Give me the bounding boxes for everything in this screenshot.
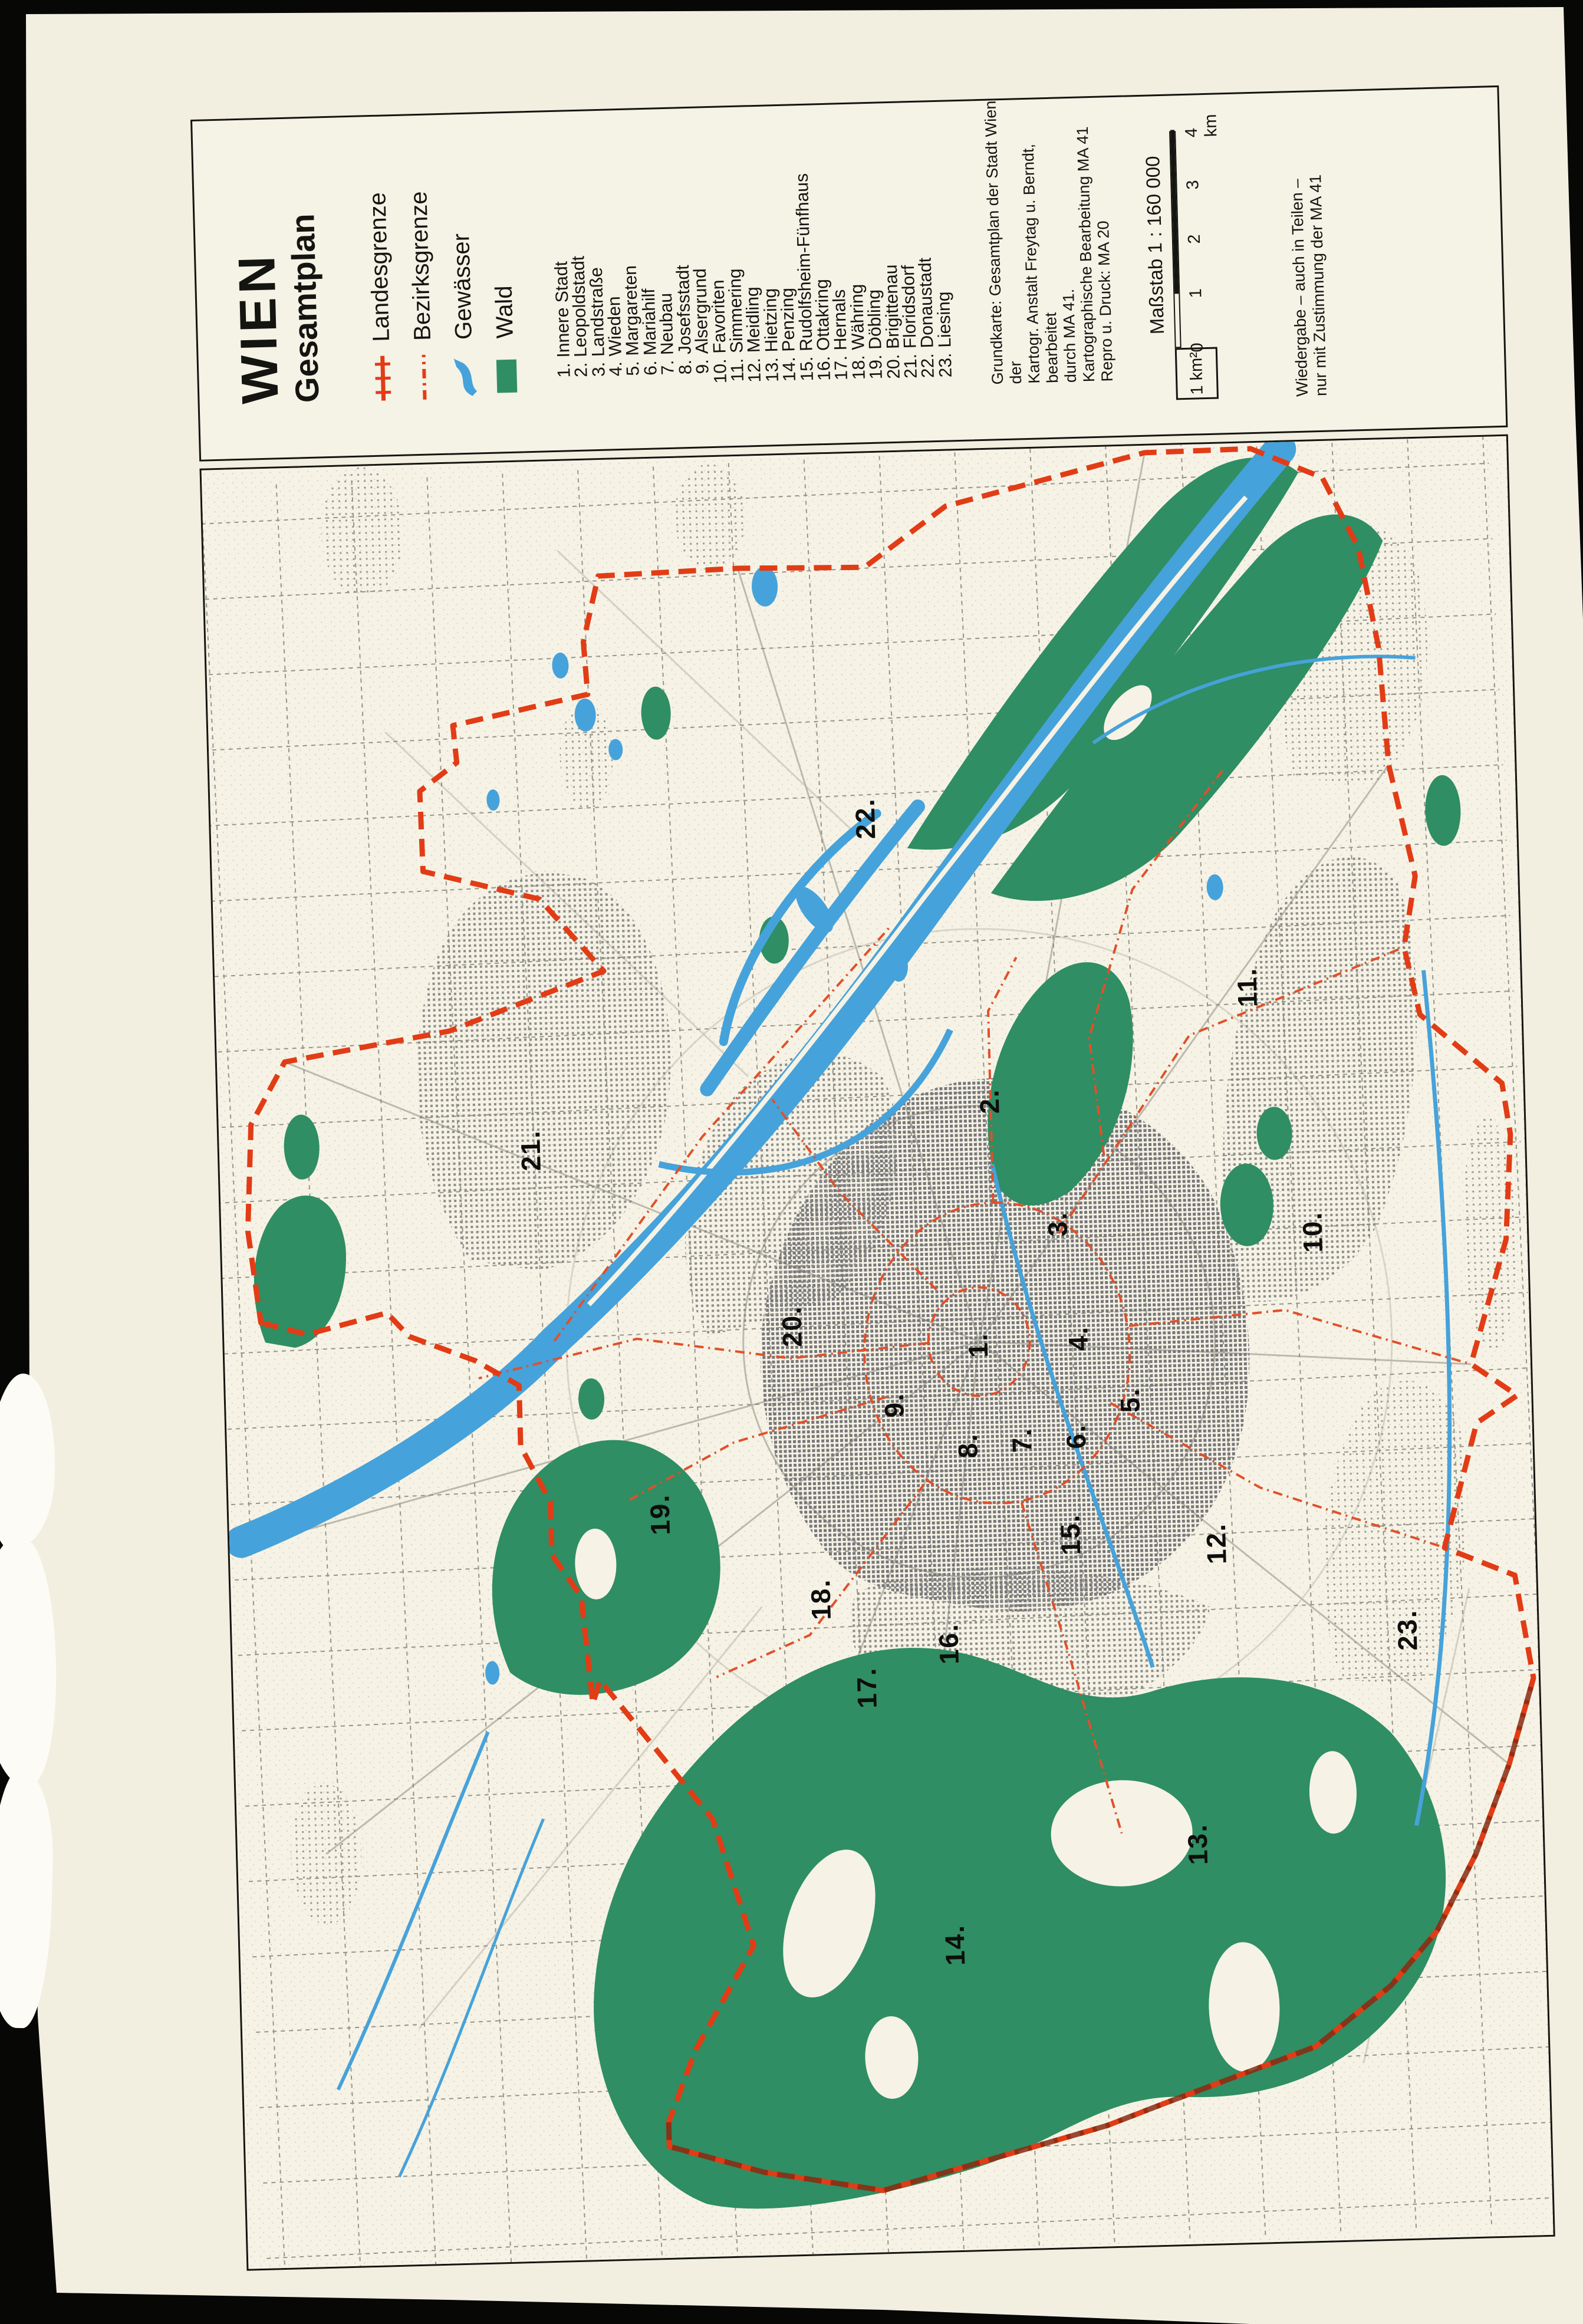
- map-district-label: 4.: [1062, 1325, 1094, 1351]
- scan-background: { "title": { "main": "WIEN", "subtitle":…: [0, 0, 1583, 2324]
- bezirksgrenze-symbol: [410, 352, 438, 402]
- district-number: 13.: [763, 352, 781, 391]
- map-district-label: 13.: [1181, 1823, 1214, 1865]
- scale-tick-label: 1: [1186, 288, 1206, 298]
- map-district-label: 8.: [952, 1433, 984, 1459]
- map-district-label: 20.: [775, 1305, 808, 1347]
- district-list: 1.Innere Stadt2.Leopoldstadt3.Landstraße…: [549, 101, 955, 396]
- map-district-label: 10.: [1296, 1211, 1329, 1253]
- legend-key-list: LandesgrenzeBezirksgrenzeGewässerWald: [356, 113, 528, 403]
- map-district-label: 7.: [1006, 1427, 1038, 1453]
- bezirksgrenze-symbol: [410, 352, 438, 402]
- scale-tick-label: 4 km: [1182, 114, 1222, 137]
- district-number: 3.: [590, 357, 608, 396]
- map-area: 1.2.3.4.5.6.7.8.9.10.11.12.13.14.15.16.1…: [199, 434, 1555, 2271]
- map-district-label: 16.: [932, 1623, 965, 1665]
- district-number: 7.: [659, 355, 677, 394]
- attribution-text: Grundkarte: Gesamtplan der Stadt Wien de…: [982, 97, 1117, 385]
- district-name: Liesing: [935, 291, 954, 348]
- gewaesser-symbol: [451, 351, 479, 401]
- scale-ratio: Maßstab 1 : 160 000: [1141, 117, 1169, 335]
- legend-item: Gewässer: [438, 114, 487, 401]
- map-district-label: 14.: [939, 1924, 972, 1966]
- district-name: Landstraße: [587, 267, 607, 357]
- map-district-label: 17.: [850, 1667, 883, 1709]
- district-number: 15.: [798, 351, 816, 390]
- district-name: Rudolfsheim-Fünfhaus: [793, 173, 815, 351]
- legend-panel: WIEN Gesamtplan LandesgrenzeBezirksgrenz…: [190, 85, 1508, 462]
- landesgrenze-symbol: [368, 353, 397, 403]
- reproduction-note: Wiedergabe – auch in Teilen –nur mit Zus…: [1285, 92, 1331, 397]
- map-district-label: 22.: [849, 798, 882, 840]
- district-number: 5.: [624, 355, 643, 394]
- wald-symbol: [492, 350, 521, 400]
- page-subtitle: Gesamtplan: [283, 118, 324, 403]
- landesgrenze-symbol: [368, 353, 397, 403]
- district-number: 21.: [902, 348, 920, 387]
- map-district-label: 23.: [1391, 1609, 1424, 1651]
- district-number: 1.: [555, 357, 574, 396]
- scale-bar-fill: [1170, 130, 1179, 294]
- map-district-label: 1.: [962, 1332, 994, 1358]
- legend-item-label: Gewässer: [449, 233, 478, 340]
- wald-symbol: [492, 350, 521, 400]
- gewaesser-symbol: [451, 351, 479, 401]
- district-number: 4.: [607, 356, 626, 395]
- square-km-box: 1 km²: [1175, 347, 1219, 400]
- map-district-label: 5.: [1114, 1387, 1146, 1413]
- district-number: 22.: [919, 348, 937, 387]
- district-number: 18.: [850, 350, 868, 389]
- district-number: 19.: [867, 349, 886, 388]
- map-district-label: 11.: [1230, 967, 1263, 1008]
- legend-item: Wald: [479, 113, 528, 400]
- map-district-label: 6.: [1059, 1424, 1092, 1450]
- legend-item-label: Landesgrenze: [365, 192, 396, 343]
- map-district-label: 2.: [973, 1088, 1006, 1114]
- legend-item: Bezirksgrenze: [397, 115, 446, 403]
- legend-item-label: Bezirksgrenze: [406, 191, 437, 341]
- district-number: 16.: [815, 351, 834, 390]
- map-district-label: 18.: [804, 1578, 837, 1620]
- scale-tick-label: 0: [1188, 343, 1207, 353]
- district-number: 6.: [642, 355, 660, 394]
- district-name: Simmering: [726, 268, 746, 353]
- legend-item: Landesgrenze: [356, 116, 404, 404]
- district-number-labels: 1.2.3.4.5.6.7.8.9.10.11.12.13.14.15.16.1…: [202, 436, 1554, 2269]
- scale-block: Maßstab 1 : 160 000 1 km² 01234 km: [1141, 114, 1283, 401]
- scale-tick-label: 3: [1183, 180, 1203, 190]
- map-sheet: WIEN Gesamtplan LandesgrenzeBezirksgrenz…: [190, 85, 1555, 2277]
- district-number: 23.: [936, 347, 955, 386]
- scale-bar: [1169, 131, 1182, 348]
- map-district-label: 9.: [878, 1393, 910, 1418]
- district-name: Donaustadt: [917, 258, 936, 348]
- map-district-label: 19.: [643, 1493, 676, 1535]
- map-title-block: WIEN Gesamtplan: [226, 118, 324, 404]
- legend-item-label: Wald: [491, 285, 519, 339]
- district-number: 11.: [729, 353, 747, 391]
- district-number: 20.: [884, 349, 903, 388]
- page-title: WIEN: [226, 119, 287, 404]
- district-name: Margareten: [622, 265, 641, 356]
- district-number: 14.: [781, 351, 799, 390]
- scale-tick-label: 2: [1185, 234, 1204, 244]
- map-district-label: 12.: [1200, 1523, 1233, 1565]
- legend-content: WIEN Gesamtplan LandesgrenzeBezirksgrenz…: [192, 87, 1506, 460]
- map-district-label: 21.: [514, 1130, 547, 1171]
- district-number: 12.: [746, 353, 764, 391]
- map-district-label: 3.: [1041, 1211, 1074, 1237]
- district-number: 10.: [711, 353, 729, 392]
- district-number: 9.: [694, 354, 712, 393]
- district-number: 17.: [832, 350, 851, 389]
- district-number: 8.: [676, 354, 695, 393]
- district-number: 2.: [572, 357, 591, 396]
- map-district-label: 15.: [1054, 1513, 1087, 1555]
- map-canvas: 1.2.3.4.5.6.7.8.9.10.11.12.13.14.15.16.1…: [202, 436, 1554, 2269]
